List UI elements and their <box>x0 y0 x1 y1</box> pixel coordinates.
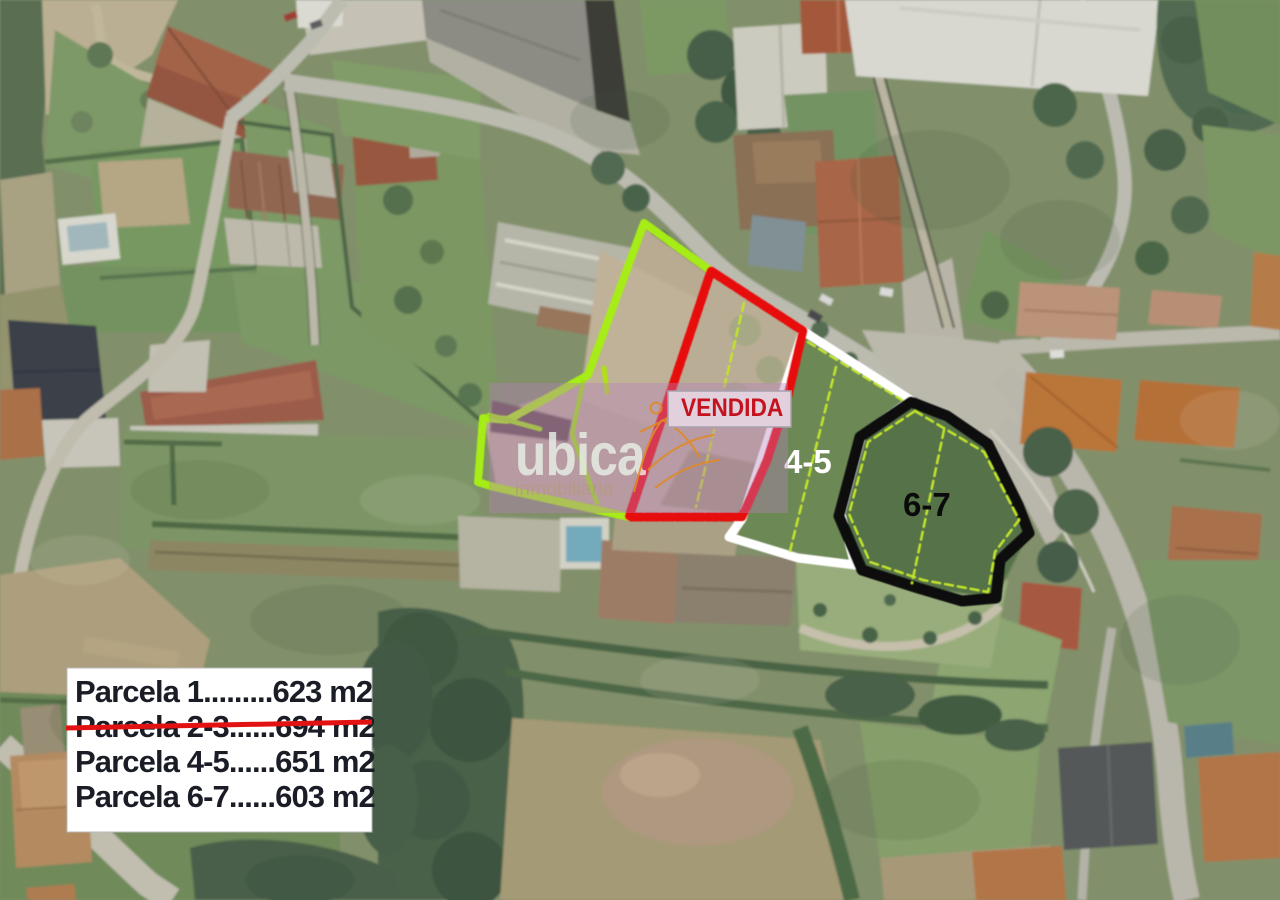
svg-text:VENDIDA: VENDIDA <box>681 394 783 422</box>
svg-text:Parcela 4-5......651 m2: Parcela 4-5......651 m2 <box>75 744 375 779</box>
svg-text:Parcela 6-7......603 m2: Parcela 6-7......603 m2 <box>75 779 375 814</box>
svg-text:6-7: 6-7 <box>903 486 951 523</box>
svg-text:4-5: 4-5 <box>784 443 832 480</box>
svg-text:ubica: ubica <box>515 422 647 488</box>
svg-text:inmobiliaria: inmobiliaria <box>515 479 614 500</box>
svg-text:Parcela 1.........623 m2: Parcela 1.........623 m2 <box>75 674 372 709</box>
